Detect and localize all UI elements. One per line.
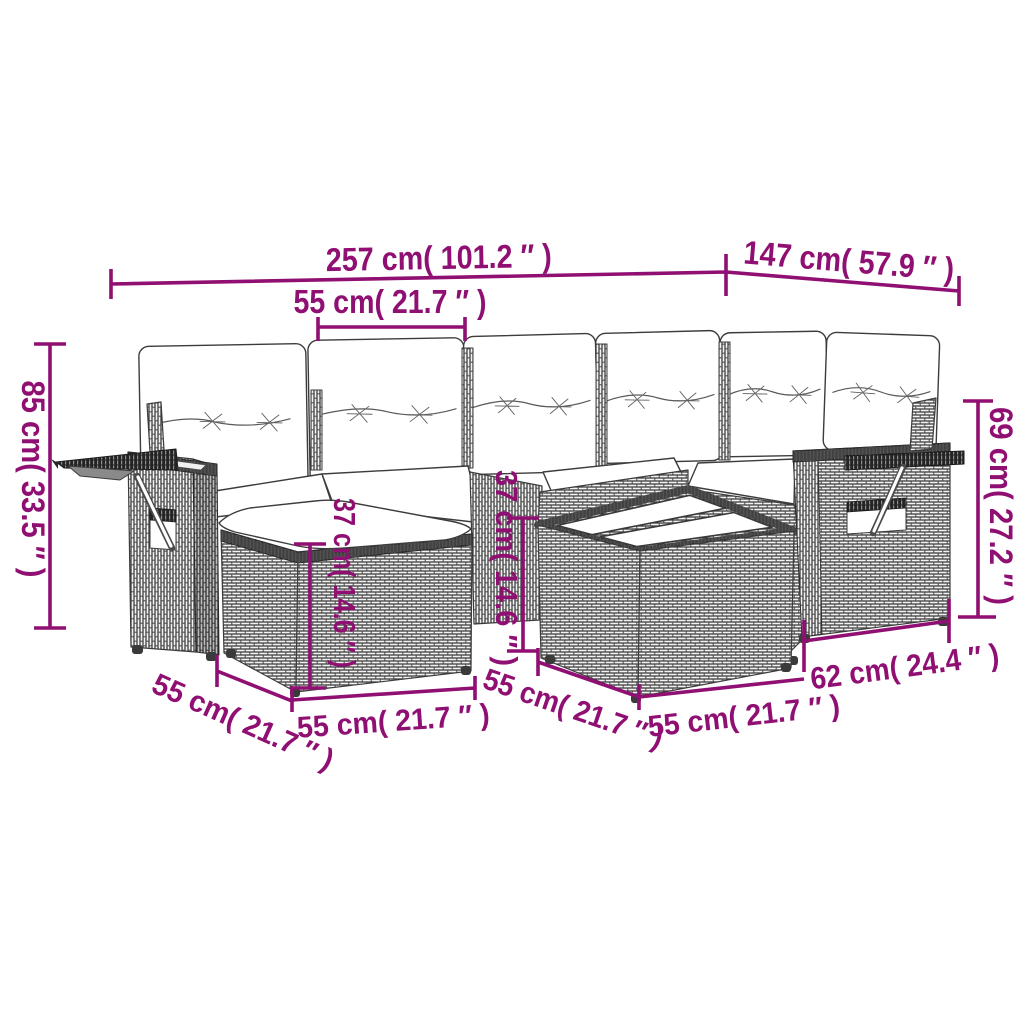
svg-text:55 cm( 21.7 ″ ): 55 cm( 21.7 ″ ): [294, 283, 487, 320]
svg-text:257 cm( 101.2 ″ ): 257 cm( 101.2 ″ ): [325, 237, 552, 278]
svg-text:85 cm( 33.5 ″ ): 85 cm( 33.5 ″ ): [15, 381, 51, 578]
svg-text:37 cm( 14.6 ″ ): 37 cm( 14.6 ″ ): [489, 470, 524, 666]
svg-text:37 cm( 14.6 ″ ): 37 cm( 14.6 ″ ): [327, 498, 362, 668]
svg-text:69 cm( 27.2 ″ ): 69 cm( 27.2 ″ ): [983, 407, 1019, 605]
